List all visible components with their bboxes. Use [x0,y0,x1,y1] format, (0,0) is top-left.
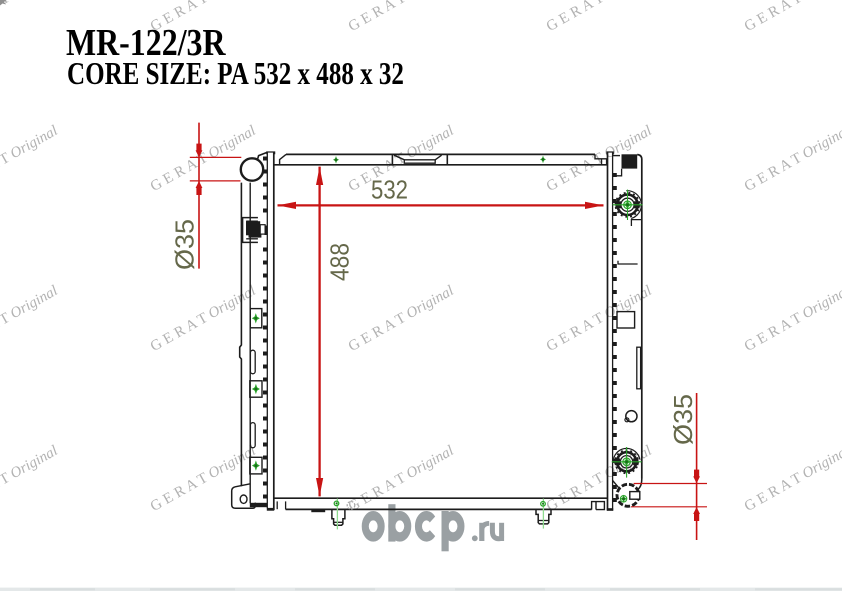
svg-text:Ø35: Ø35 [668,394,698,445]
svg-text:Ø35: Ø35 [169,219,199,270]
svg-text:532: 532 [371,174,408,204]
svg-text:488: 488 [324,243,354,281]
